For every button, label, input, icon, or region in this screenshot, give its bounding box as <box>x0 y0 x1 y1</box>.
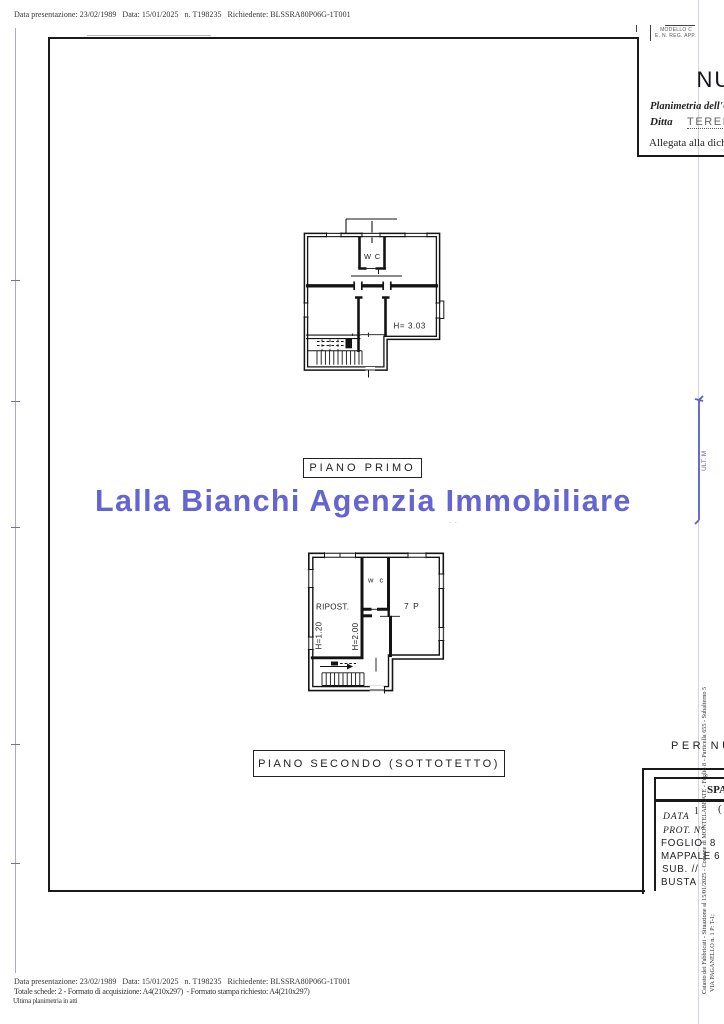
svg-text:H= 3.03: H= 3.03 <box>394 322 426 331</box>
svg-text:w c: w c <box>367 576 385 585</box>
svg-text:7 P: 7 P <box>404 601 420 611</box>
svg-text:H=2.00: H=2.00 <box>351 622 360 650</box>
svg-text:W C: W C <box>364 252 381 261</box>
svg-text:RIPOST.: RIPOST. <box>316 603 349 612</box>
svg-text:H=1.20: H=1.20 <box>315 621 324 649</box>
